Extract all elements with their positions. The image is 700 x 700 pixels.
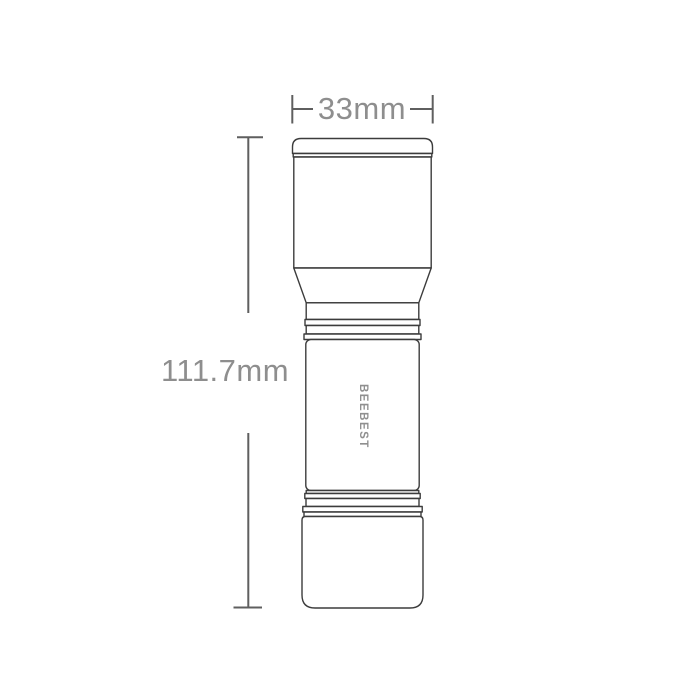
brand-label: BEEBEST	[352, 384, 369, 454]
flashlight-neck	[306, 303, 419, 320]
flashlight-upper-ring-spacer	[306, 326, 419, 335]
width-dimension-label: 33mm	[312, 92, 412, 126]
flashlight-lower-ring-1	[305, 494, 420, 499]
flashlight-head	[294, 157, 431, 268]
flashlight-lower-ring-spacer-2	[306, 499, 419, 507]
flashlight-lower-ring-2	[303, 507, 422, 513]
flashlight-tailcap	[302, 517, 423, 609]
flashlight-upper-ring-2	[304, 334, 421, 340]
flashlight-upper-ring-1	[305, 320, 420, 326]
flashlight-outline	[293, 139, 433, 609]
flashlight-taper	[294, 268, 431, 303]
height-dimension-label: 111.7mm	[145, 354, 305, 388]
flashlight-dimension-diagram: 33mm 111.7mm BEEBEST	[0, 0, 700, 700]
flashlight-bezel	[293, 139, 433, 154]
